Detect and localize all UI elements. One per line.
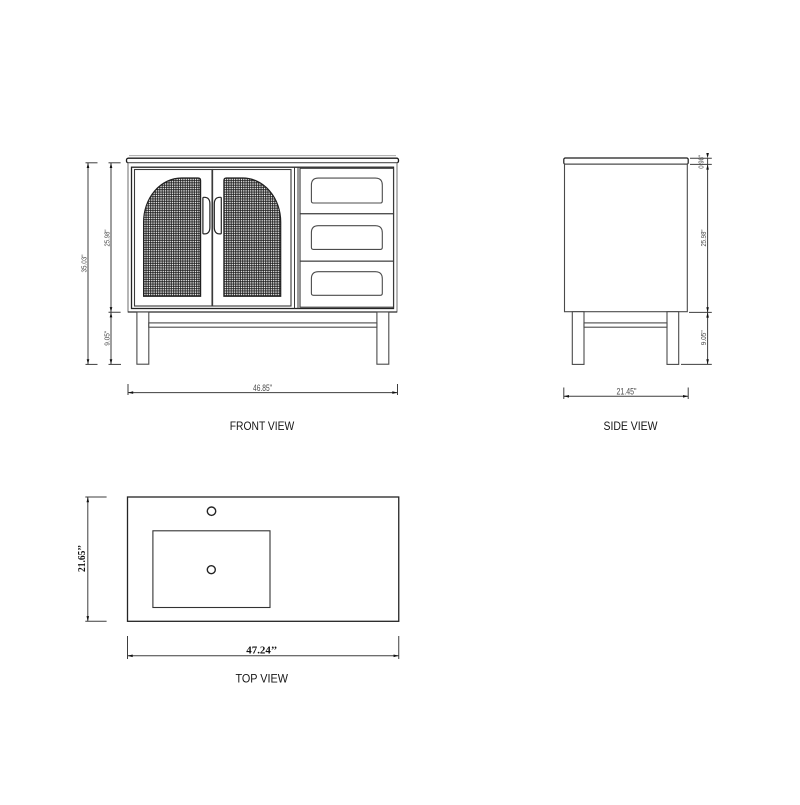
svg-text:47.24’’: 47.24’’ <box>246 645 277 657</box>
svg-text:35.03": 35.03" <box>80 254 89 272</box>
svg-text:21.65’’: 21.65’’ <box>77 545 88 572</box>
svg-text:SIDE VIEW: SIDE VIEW <box>604 419 658 433</box>
svg-text:46.85": 46.85" <box>253 383 272 393</box>
svg-text:25.98": 25.98" <box>699 229 708 246</box>
svg-text:25.98": 25.98" <box>103 229 112 246</box>
svg-text:0.98": 0.98" <box>697 155 706 169</box>
svg-text:9.05": 9.05" <box>103 331 112 346</box>
svg-text:21.45": 21.45" <box>617 387 637 397</box>
svg-text:FRONT VIEW: FRONT VIEW <box>230 419 295 433</box>
svg-text:TOP VIEW: TOP VIEW <box>235 672 288 686</box>
svg-text:9.05": 9.05" <box>699 330 708 345</box>
